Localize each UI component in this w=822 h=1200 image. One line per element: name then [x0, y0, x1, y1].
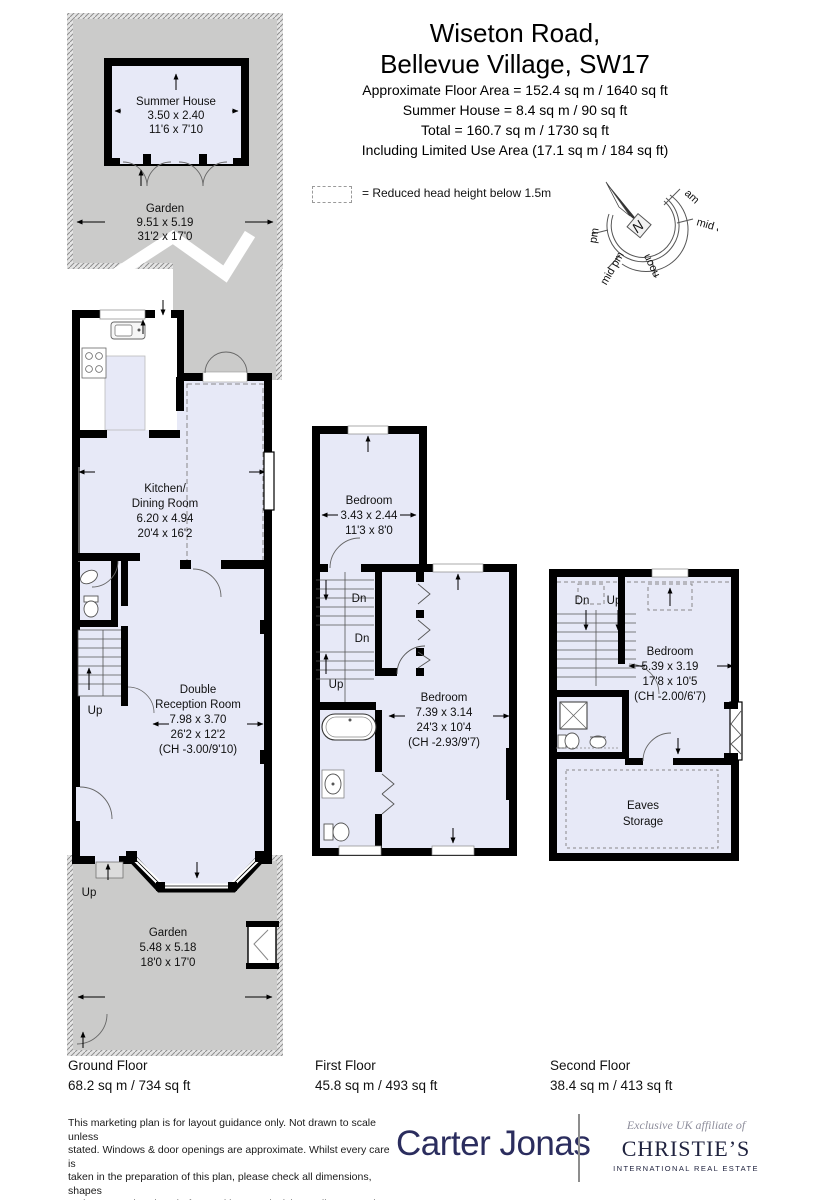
kitchen-area: [76, 300, 184, 438]
stair-dn-label: Dn: [352, 593, 367, 605]
legend-label: = Reduced head height below 1.5m: [362, 186, 551, 200]
stair-up-label: Up: [88, 705, 103, 717]
svg-text:5.39 x 3.19: 5.39 x 3.19: [642, 661, 699, 673]
footer-divider: [578, 1114, 580, 1182]
christies-name: CHRISTIE’S: [594, 1136, 778, 1162]
svg-text:20'4 x 16'2: 20'4 x 16'2: [138, 528, 193, 540]
svg-text:Dining Room: Dining Room: [132, 498, 198, 510]
svg-text:Garden: Garden: [149, 927, 187, 939]
svg-text:(CH -3.00/9'10): (CH -3.00/9'10): [159, 744, 237, 756]
toilet-icon: [324, 823, 349, 841]
floor-area: 68.2 sq m / 734 sq ft: [68, 1076, 190, 1096]
area-line: Approximate Floor Area = 152.4 sq m / 16…: [295, 81, 735, 100]
svg-text:Bedroom: Bedroom: [346, 495, 393, 507]
floor-area: 38.4 sq m / 413 sq ft: [550, 1076, 672, 1096]
carter-jonas-logo: Carter Jonas: [396, 1124, 590, 1164]
stair-up-label: Up: [82, 887, 97, 899]
compass-mid-pm: mid pm: [598, 250, 626, 287]
reduced-head-height-swatch: [312, 186, 352, 203]
compass-noon: noon: [641, 252, 662, 279]
window: [433, 564, 483, 572]
svg-text:Kitchen/: Kitchen/: [144, 483, 186, 495]
window: [339, 846, 381, 855]
room-dim: 3.50 x 2.40: [148, 110, 205, 122]
first-floor-walls: [316, 430, 513, 852]
svg-text:7.98 x 3.70: 7.98 x 3.70: [170, 714, 227, 726]
hob-icon: [82, 348, 106, 378]
page-title: Wiseton Road, Bellevue Village, SW17 App…: [295, 18, 735, 160]
window: [432, 846, 474, 855]
svg-text:26'2 x 12'2: 26'2 x 12'2: [171, 729, 226, 741]
room-label: Summer House: [136, 96, 216, 108]
floor-name: Ground Floor: [68, 1056, 190, 1076]
floorplan-page: Wiseton Road, Bellevue Village, SW17 App…: [0, 0, 822, 1200]
floor-name: First Floor: [315, 1056, 437, 1076]
svg-text:Double: Double: [180, 684, 216, 696]
room-dim: 11'6 x 7'10: [149, 124, 203, 136]
stair-dn-label: Dn: [355, 633, 370, 645]
window: [100, 310, 145, 319]
ground-floor-plan: Summer House 3.50 x 2.40 11'6 x 7'10 Gar…: [65, 12, 290, 1057]
compass-am: am: [682, 187, 701, 206]
sink-icon: [590, 736, 606, 748]
side-gate: [246, 921, 279, 969]
svg-text:24'3 x 10'4: 24'3 x 10'4: [417, 722, 473, 734]
first-floor-summary: First Floor 45.8 sq m / 493 sq ft: [315, 1056, 437, 1096]
bathtub-icon: [322, 714, 376, 740]
title-line1: Wiseton Road,: [295, 18, 735, 49]
svg-text:18'0 x 17'0: 18'0 x 17'0: [141, 957, 196, 969]
svg-text:9.51 x 5.19: 9.51 x 5.19: [137, 217, 194, 229]
disclaimer-line: This marketing plan is for layout guidan…: [68, 1117, 398, 1144]
ground-floor-summary: Ground Floor 68.2 sq m / 734 sq ft: [68, 1056, 190, 1096]
svg-text:(CH -2.93/9'7): (CH -2.93/9'7): [408, 737, 480, 749]
first-floor-plan: Bedroom 3.43 x 2.44 11'3 x 8'0 Dn Dn Up: [312, 422, 517, 857]
svg-text:Reception Room: Reception Room: [155, 699, 241, 711]
second-floor-summary: Second Floor 38.4 sq m / 413 sq ft: [550, 1056, 672, 1096]
svg-text:(CH -2.00/6'7): (CH -2.00/6'7): [634, 691, 706, 703]
svg-text:Garden: Garden: [146, 203, 184, 215]
svg-text:11'3 x 8'0: 11'3 x 8'0: [345, 525, 393, 537]
floor-area: 45.8 sq m / 493 sq ft: [315, 1076, 437, 1096]
area-line: Summer House = 8.4 sq m / 90 sq ft: [295, 101, 735, 120]
toilet-icon: [84, 596, 98, 617]
area-line: Total = 160.7 sq m / 1730 sq ft: [295, 121, 735, 140]
stair-up-label: Up: [329, 679, 344, 691]
title-line2: Bellevue Village, SW17: [295, 49, 735, 80]
svg-text:Storage: Storage: [623, 816, 663, 828]
compass-mid-am: mid am: [695, 216, 718, 237]
christies-logo: Exclusive UK affiliate of CHRISTIE’S INT…: [594, 1118, 778, 1173]
compass-needle: N: [606, 182, 651, 238]
floor-name: Second Floor: [550, 1056, 672, 1076]
svg-text:6.20 x 4.94: 6.20 x 4.94: [137, 513, 195, 525]
disclaimer-line: taken in the preparation of this plan, p…: [68, 1171, 398, 1198]
sink-icon: [322, 770, 344, 798]
chimney: [506, 748, 517, 800]
area-line: Including Limited Use Area (17.1 sq m / …: [295, 141, 735, 160]
svg-text:Bedroom: Bedroom: [421, 692, 468, 704]
disclaimer: This marketing plan is for layout guidan…: [68, 1117, 398, 1200]
svg-text:Eaves: Eaves: [627, 800, 659, 812]
second-floor-plan: Dn Up: [548, 566, 748, 864]
svg-text:3.43 x 2.44: 3.43 x 2.44: [341, 510, 399, 522]
disclaimer-line: stated. Windows & door openings are appr…: [68, 1144, 398, 1171]
shower-icon: [560, 702, 587, 729]
svg-text:Bedroom: Bedroom: [647, 646, 694, 658]
svg-text:5.48 x 5.18: 5.48 x 5.18: [140, 942, 197, 954]
stair-dn-label: Dn: [575, 595, 590, 607]
window: [652, 569, 688, 577]
christies-subtitle: INTERNATIONAL REAL ESTATE: [594, 1164, 778, 1173]
christies-affiliate-line: Exclusive UK affiliate of: [594, 1118, 778, 1133]
toilet-icon: [558, 733, 579, 749]
window: [348, 426, 388, 434]
svg-text:31'2 x 17'0: 31'2 x 17'0: [138, 231, 193, 243]
svg-text:7.39 x 3.14: 7.39 x 3.14: [416, 707, 474, 719]
svg-text:17'8 x 10'5: 17'8 x 10'5: [643, 676, 698, 688]
compass-rose: N am mid am noon mid pm pm: [588, 168, 718, 293]
compass-pm: pm: [588, 227, 602, 244]
